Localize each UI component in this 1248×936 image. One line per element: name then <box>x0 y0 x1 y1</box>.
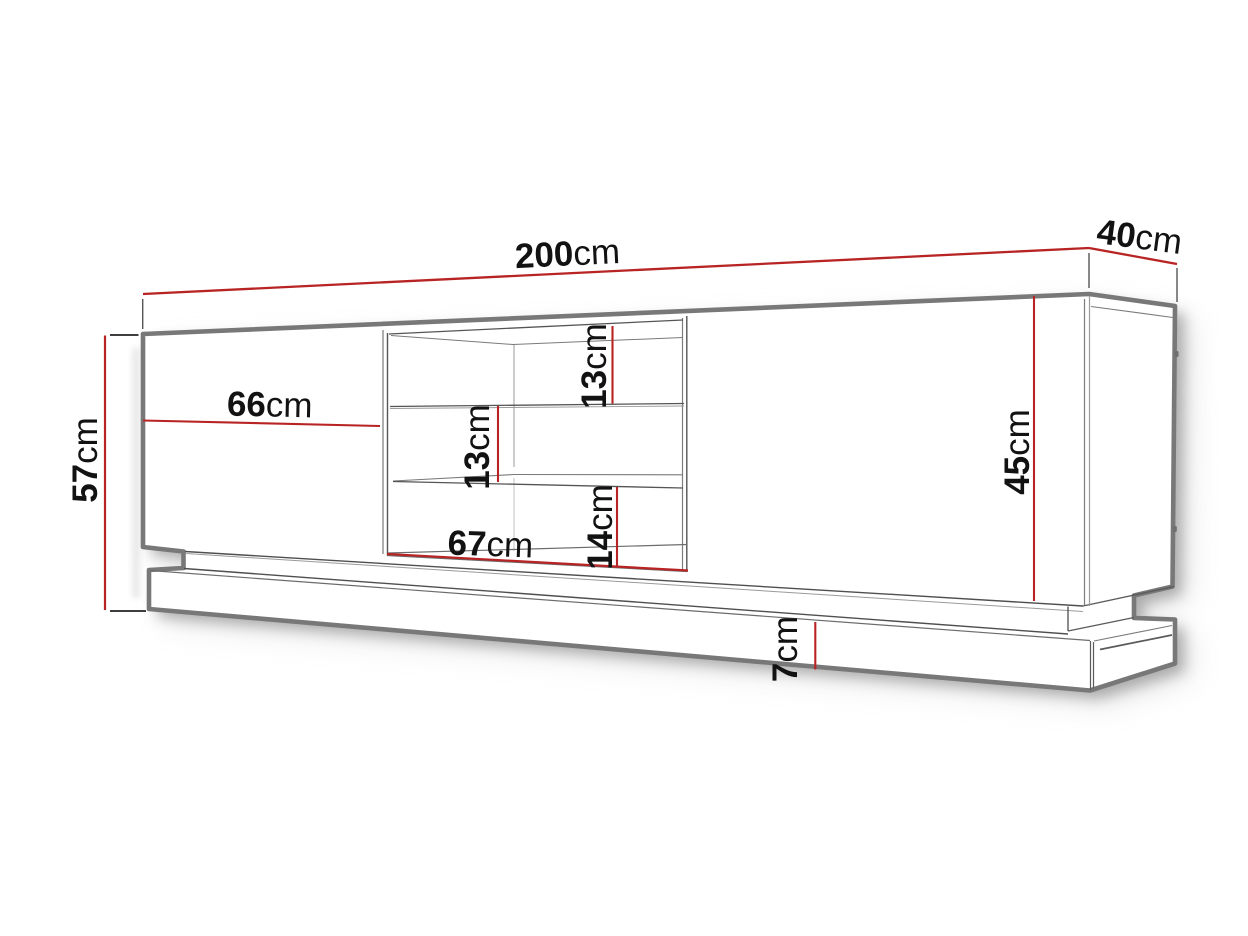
svg-text:13cm: 13cm <box>575 323 614 409</box>
svg-text:67cm: 67cm <box>447 524 534 566</box>
svg-text:57cm: 57cm <box>66 417 105 503</box>
svg-text:7cm: 7cm <box>766 616 805 682</box>
svg-text:200cm: 200cm <box>514 232 621 276</box>
svg-text:40cm: 40cm <box>1095 212 1185 262</box>
svg-text:14cm: 14cm <box>581 484 620 570</box>
svg-text:45cm: 45cm <box>998 409 1037 495</box>
svg-text:66cm: 66cm <box>227 385 313 426</box>
svg-text:13cm: 13cm <box>458 404 497 490</box>
